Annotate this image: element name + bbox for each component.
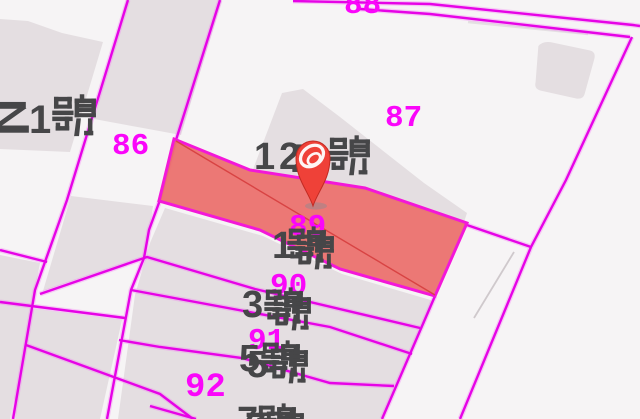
- svg-text:87: 87: [385, 101, 422, 136]
- svg-text:1: 1: [29, 98, 51, 142]
- svg-text:88: 88: [344, 0, 381, 23]
- svg-text:1: 1: [254, 136, 275, 178]
- svg-text:86: 86: [112, 129, 149, 164]
- svg-text:3: 3: [242, 284, 263, 326]
- svg-text:92: 92: [185, 369, 226, 407]
